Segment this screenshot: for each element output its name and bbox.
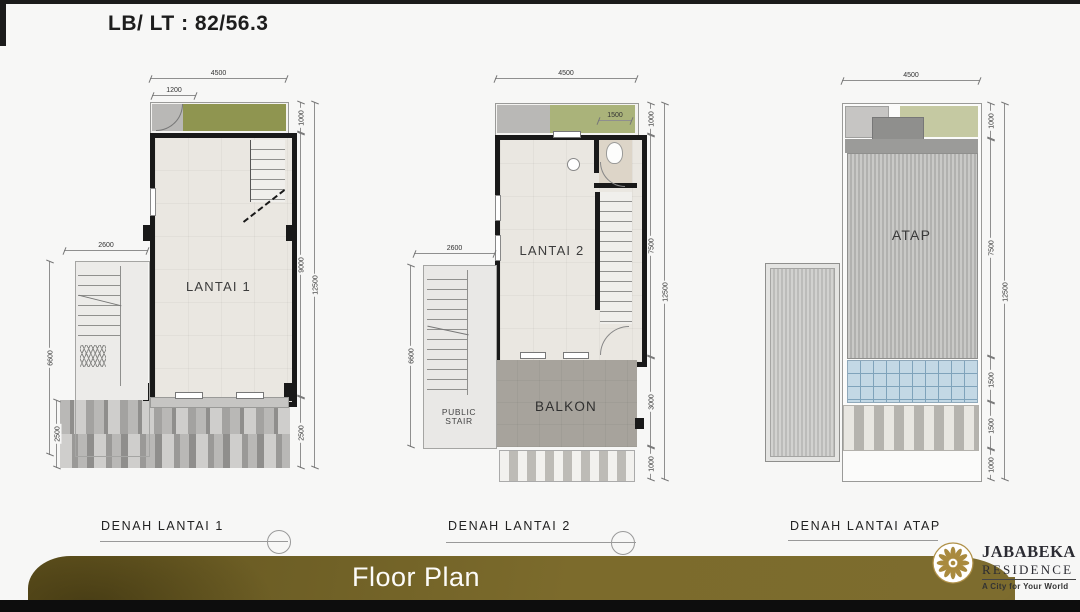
dim-stair-height: 6600	[410, 265, 411, 447]
dim-stair-width: 2600	[64, 250, 148, 251]
left-edge-notch	[0, 0, 6, 46]
dim-right-total: 12500	[314, 102, 315, 468]
dim-right-seg: 7500	[650, 135, 651, 357]
sink	[567, 158, 580, 171]
caption-denah-lantai-atap: DENAH LANTAI ATAP	[790, 519, 941, 533]
brand-logo: JABABEKA RESIDENCE A City for Your World	[930, 538, 1080, 598]
window-slit	[150, 188, 156, 216]
dim-right-seg: 1000	[990, 449, 991, 480]
page-title: LB/ LT : 82/56.3	[108, 12, 269, 36]
door-slit	[175, 392, 203, 399]
dim-right-seg: 1000	[990, 103, 991, 139]
dim-right-seg: 1000	[650, 103, 651, 135]
footer-ribbon	[28, 556, 1012, 601]
room-label-lantai-2: LANTAI 2	[497, 244, 607, 258]
balcony-label: BALKON	[495, 400, 637, 415]
logo-tagline: A City for Your World	[982, 582, 1076, 591]
dim-width-total: 4500	[150, 78, 287, 79]
wall-pillar	[286, 225, 294, 241]
window-slit	[495, 195, 501, 221]
caption-marker-circle	[611, 531, 635, 555]
dim-right-seg: 7500	[990, 139, 991, 357]
dim-stair-width: 2600	[414, 253, 495, 254]
bottom-black-bar	[0, 600, 1080, 612]
floor-plan-slide: LB/ LT : 82/56.3 4500 1200 LANTAI	[0, 0, 1080, 612]
logo-divider	[982, 579, 1076, 580]
caption-underline	[788, 540, 938, 541]
jababeka-flower-icon	[932, 542, 974, 589]
dim-right-seg: 3000	[650, 357, 651, 447]
dim-right-seg: 1500	[990, 357, 991, 402]
door-slit	[520, 352, 546, 359]
foyer-gray	[497, 105, 550, 133]
public-stair-label-line2: STAIR	[423, 417, 495, 426]
dim-width-total: 4500	[842, 80, 980, 81]
garden-area	[183, 104, 286, 131]
caption-marker-circle	[267, 530, 291, 554]
stair-hatch	[80, 345, 106, 367]
footer-title: Floor Plan	[352, 562, 480, 593]
awning-stripes	[843, 405, 979, 451]
top-edge-bar	[0, 0, 1080, 4]
door-slit	[563, 352, 589, 359]
wall-pillar	[143, 225, 151, 241]
caption-underline	[446, 542, 636, 543]
dim-right-seg: 1000	[650, 447, 651, 480]
threshold	[150, 397, 289, 408]
dim-garden: 1500	[598, 120, 632, 121]
dim-right-total: 12500	[1004, 103, 1005, 480]
awning-stripes	[499, 450, 635, 482]
dim-width-total: 4500	[495, 78, 637, 79]
toilet	[606, 142, 623, 164]
dim-right-seg: 1000	[300, 102, 301, 133]
dim-right-total: 12500	[664, 103, 665, 480]
dim-width-entry: 1200	[152, 95, 196, 96]
roof-garden	[550, 105, 635, 133]
dim-stair-height: 6600	[49, 261, 50, 455]
glass-canopy	[847, 360, 978, 403]
logo-division: RESIDENCE	[982, 563, 1076, 576]
caption-denah-lantai-1: DENAH LANTAI 1	[101, 519, 224, 533]
stair-roof-corrugation	[770, 268, 835, 457]
window-slit	[553, 131, 581, 138]
dim-right-seg: 1500	[990, 402, 991, 449]
public-stair-label: PUBLIC STAIR	[423, 408, 495, 427]
roof-gutter	[845, 139, 978, 153]
balcony-pillar	[635, 418, 644, 429]
caption-underline	[100, 541, 288, 542]
dim-right-seg: 2500	[300, 397, 301, 468]
bathroom-wall	[594, 140, 599, 173]
roof-box-dark	[872, 117, 924, 141]
roof-label-atap: ATAP	[847, 228, 976, 243]
door-slit	[236, 392, 264, 399]
logo-brand-name: JABABEKA	[982, 544, 1076, 561]
dim-left-lower: 2500	[56, 400, 57, 468]
room-label-lantai-1: LANTAI 1	[150, 280, 287, 294]
dim-right-seg: 9000	[300, 133, 301, 397]
main-roof	[847, 153, 978, 359]
stair-divider	[120, 266, 121, 386]
caption-denah-lantai-2: DENAH LANTAI 2	[448, 519, 571, 533]
stair-divider	[467, 270, 468, 395]
